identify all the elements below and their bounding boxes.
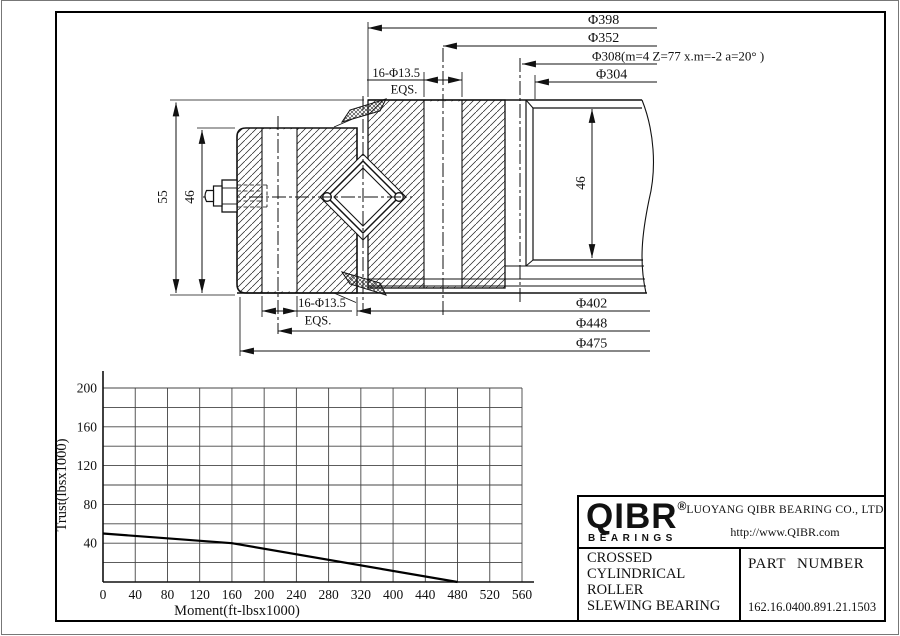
x-tick-label: 520 — [480, 587, 501, 602]
y-tick-label: 160 — [77, 419, 98, 434]
bolt-pattern-top-label: 16-Φ13.5 — [372, 66, 420, 80]
y-axis-title: Trust(lbsx1000) — [54, 438, 70, 531]
y-tick-label: 80 — [84, 497, 98, 512]
x-axis-title: Moment(ft-lbsx1000) — [174, 603, 300, 619]
load-curve — [103, 534, 458, 583]
company-name: LUOYANG QIBR BEARING CO., LTD — [686, 504, 883, 516]
dim-inner-ring-height-46: 46 — [182, 190, 197, 204]
x-tick-label: 160 — [222, 587, 243, 602]
y-tick-label: 200 — [77, 381, 98, 396]
x-tick-label: 80 — [161, 587, 175, 602]
title-block-body: CROSSED CYLINDRICAL ROLLER SLEWING BEARI… — [579, 549, 884, 620]
x-tick-label: 40 — [128, 587, 142, 602]
x-tick-label: 480 — [447, 587, 468, 602]
dim-gear-pitch-308: Φ308(m=4 Z=77 x.m=-2 a=20° ) — [592, 49, 764, 64]
break-line — [642, 100, 653, 293]
dim-bolt-circle-448: Φ448 — [576, 317, 607, 332]
load-capacity-chart: 0408012016020024028032040044048052056040… — [40, 368, 540, 624]
dim-gear-304: Φ304 — [596, 68, 627, 83]
title-block-header: QIBR® BEARINGS LUOYANG QIBR BEARING CO.,… — [579, 497, 884, 549]
bearing-section-drawing: Φ398 Φ352 Φ308(m=4 Z=77 x.m=-2 a=20° ) Φ… — [0, 0, 900, 366]
dim-outer-398: Φ398 — [588, 13, 619, 28]
x-tick-label: 120 — [190, 587, 211, 602]
drawing-sheet: Φ398 Φ352 Φ308(m=4 Z=77 x.m=-2 a=20° ) Φ… — [0, 0, 900, 636]
x-tick-label: 560 — [512, 587, 533, 602]
y-tick-label: 40 — [84, 536, 98, 551]
part-number-label: PART NUMBER — [748, 556, 882, 573]
part-number-value: 162.16.0400.891.21.1503 — [748, 600, 882, 615]
product-description: CROSSED CYLINDRICAL ROLLER SLEWING BEARI… — [579, 549, 741, 620]
x-tick-label: 400 — [383, 587, 404, 602]
bolt-pattern-bottom-eqs: EQS. — [305, 314, 332, 328]
x-tick-label: 440 — [415, 587, 436, 602]
part-number-cell: PART NUMBER 162.16.0400.891.21.1503 — [741, 549, 884, 620]
x-tick-label: 240 — [286, 587, 307, 602]
dim-gear-ring-height-46: 46 — [573, 176, 588, 190]
y-tick-label: 120 — [77, 458, 98, 473]
company-website: http://www.QIBR.com — [686, 525, 883, 540]
x-tick-label: 280 — [318, 587, 339, 602]
logo-subtext: BEARINGS — [588, 533, 686, 544]
product-line-2: ROLLER — [587, 583, 737, 599]
product-line-1: CROSSED CYLINDRICAL — [587, 551, 737, 583]
x-tick-label: 200 — [254, 587, 275, 602]
company-logo: QIBR® BEARINGS — [579, 501, 686, 544]
dim-outer-475: Φ475 — [576, 337, 607, 352]
dim-bolt-circle-352: Φ352 — [588, 31, 619, 46]
title-block: QIBR® BEARINGS LUOYANG QIBR BEARING CO.,… — [577, 495, 886, 622]
logo-wordmark: QIBR® — [586, 501, 686, 532]
bolt-pattern-top-eqs: EQS. — [391, 83, 418, 97]
dim-raceway-402: Φ402 — [576, 297, 607, 312]
registered-trademark-icon: ® — [678, 499, 687, 513]
x-tick-label: 0 — [100, 587, 107, 602]
x-tick-label: 320 — [351, 587, 372, 602]
company-info: LUOYANG QIBR BEARING CO., LTD http://www… — [686, 504, 887, 540]
bolt-pattern-bottom-label: 16-Φ13.5 — [298, 296, 346, 310]
dim-overall-height-55: 55 — [155, 190, 170, 204]
product-line-3: SLEWING BEARING — [587, 599, 737, 615]
